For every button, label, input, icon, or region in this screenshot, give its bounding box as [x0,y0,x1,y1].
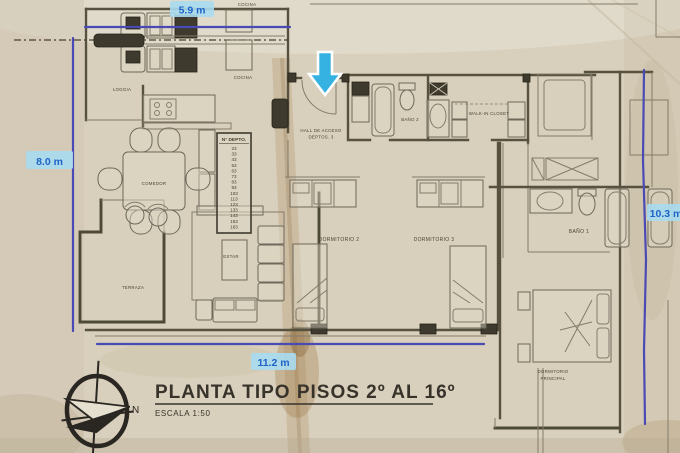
toilet-icon [400,90,414,110]
label-bano2: BAÑO 2 [401,117,419,122]
depto-number: 63 [231,168,237,173]
dim-label-left: 8.0 m [36,156,63,168]
depto-number: 123 [230,202,238,207]
armchair [196,300,212,320]
depto-number: 33 [231,152,237,157]
sink-icon [147,46,175,72]
bed-principal [533,290,611,362]
label-loggia: LOGGIA [113,87,131,92]
dim-label-right: 10.3 m [650,208,680,220]
depto-number: 93 [231,185,237,190]
depto-number: 163 [230,224,238,229]
label-bano1: BAÑO 1 [569,228,589,235]
label-cocina-upper: COCINA [238,2,257,7]
label-hall-line1: HALL DE ACCESO [300,128,341,133]
depto-number: 133 [230,208,238,213]
plan-scale: ESCALA 1:50 [155,409,211,418]
dim-label-top: 5.9 m [179,5,206,17]
label-terraza: TERRAZA [122,285,144,290]
label-estar: ESTAR [223,254,239,259]
plan-title: PLANTA TIPO PISOS 2º AL 16º [155,382,456,403]
depto-number: 83 [231,180,237,185]
sofa [258,283,284,301]
label-comedor: COMEDOR [142,181,167,186]
depto-number: 153 [230,219,238,224]
depto-number: 103 [230,191,238,196]
label-walkin-closet: WALK-IN CLOSET [469,111,509,116]
pass-counter [94,34,144,47]
depto-number: 23 [231,146,237,151]
depto-number: 73 [231,174,237,179]
depto-number: 143 [230,213,238,218]
toilet-bano1-icon [579,193,595,215]
label-dormitorio3: DORMITORIO 3 [414,237,455,243]
depto-table-header: N° DEPTO. [222,137,247,143]
coffee-table [222,240,247,280]
shaft [272,99,288,128]
north-label: N [132,405,139,416]
dim-label-bottom: 11.2 m [257,357,289,369]
depto-number: 53 [231,163,237,168]
depto-table: N° DEPTO. 23 33 43 53 63 73 83 93 103 11… [217,133,251,233]
floor-plan-photo: N° DEPTO. 23 33 43 53 63 73 83 93 103 11… [0,0,680,453]
depto-number: 113 [230,196,238,201]
label-dorm-principal-line1: DORMITORIO [538,369,569,374]
label-hall-line2: DEPTOS. 3 [308,135,333,140]
sink-upper-icon [147,13,175,38]
bed-dorm2 [293,244,327,328]
label-dormitorio2: DORMITORIO 2 [319,237,360,243]
label-dorm-principal-line2: PRINCIPAL [540,376,565,381]
label-cocina: COCINA [234,75,253,80]
depto-number: 43 [231,157,237,162]
bed-dorm3 [450,246,486,328]
